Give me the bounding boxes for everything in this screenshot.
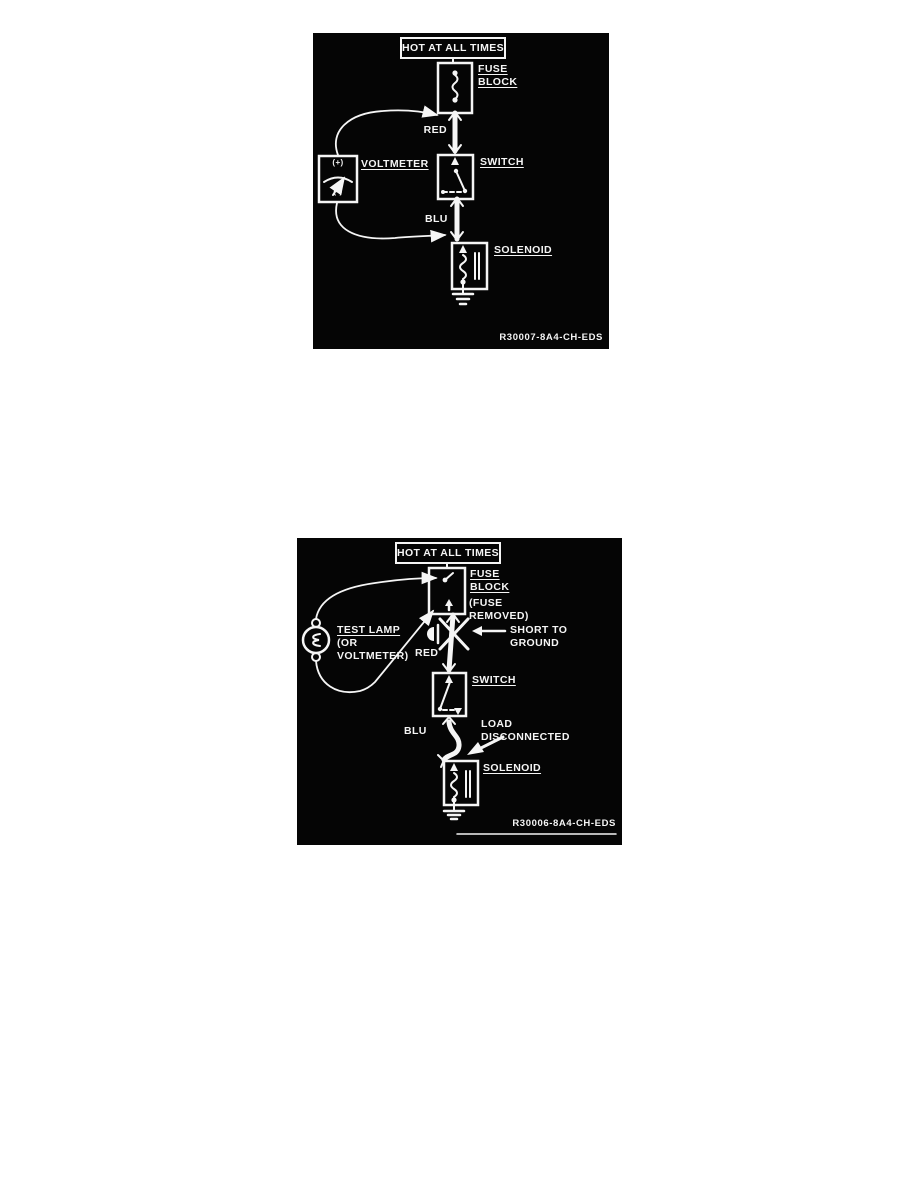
hot-banner-label: HOT AT ALL TIMES <box>401 43 505 54</box>
short-callout-arrow <box>472 626 505 636</box>
fuse-block-label-line2: BLOCK <box>478 77 517 88</box>
red-wire-label: RED <box>413 125 447 136</box>
diagram-short-to-ground-test: HOT AT ALL TIMES FUSE BLOCK (FUSE REMOVE… <box>297 538 622 845</box>
switch-label: SWITCH <box>480 157 524 168</box>
scanned-manual-page: { "colors": { "page_bg": "#ffffff", "pan… <box>0 0 918 1188</box>
solenoid-label: SOLENOID <box>483 763 541 774</box>
solenoid-symbol <box>444 761 478 810</box>
test-lamp-label-line1: TEST LAMP <box>337 625 400 636</box>
diagram-voltmeter-test: HOT AT ALL TIMES FUSE BLOCK RED (+) (-) … <box>313 33 609 349</box>
test-lamp-label-line2: (OR <box>337 638 357 649</box>
red-wire <box>449 112 461 153</box>
voltmeter-minus-label: (-) <box>319 188 357 196</box>
voltmeter-plus-label: (+) <box>319 159 357 167</box>
fuse-block-label-line1: FUSE <box>478 64 508 75</box>
switch-symbol <box>433 673 466 716</box>
hot-banner-label: HOT AT ALL TIMES <box>396 548 500 559</box>
solenoid-label: SOLENOID <box>494 245 552 256</box>
ground-symbol <box>444 811 464 819</box>
switch-symbol <box>438 155 473 199</box>
blu-wire <box>451 198 463 240</box>
blu-wire-disconnected <box>438 717 459 767</box>
fuse-removed-note-line1: (FUSE <box>469 598 503 609</box>
fuse-block-symbol <box>438 63 472 113</box>
short-to-ground-symbol <box>427 619 468 649</box>
red-wire-label: RED <box>415 648 438 659</box>
figure-reference: R30007-8A4-CH-EDS <box>499 333 603 343</box>
test-lamp-label-line3: VOLTMETER) <box>337 651 408 662</box>
fuse-block-label-line1: FUSE <box>470 569 500 580</box>
voltmeter-label: VOLTMETER <box>361 159 429 170</box>
fuse-block-symbol <box>429 568 465 614</box>
ground-symbol <box>453 294 473 304</box>
load-disconnected-label-line1: LOAD <box>481 719 512 730</box>
switch-label: SWITCH <box>472 675 516 686</box>
blu-wire-label: BLU <box>425 214 448 225</box>
fuse-removed-note-line2: REMOVED) <box>469 611 529 622</box>
solenoid-symbol <box>452 243 487 293</box>
short-to-ground-label-line2: GROUND <box>510 638 559 649</box>
fuse-block-label-line2: BLOCK <box>470 582 509 593</box>
figure-reference: R30006-8A4-CH-EDS <box>512 819 616 829</box>
short-to-ground-label-line1: SHORT TO <box>510 625 567 636</box>
lamp-lead-to-fuse-top <box>316 578 436 619</box>
blu-wire-label: BLU <box>404 726 427 737</box>
test-lamp-symbol <box>303 619 329 661</box>
load-disconnected-label-line2: DISCONNECTED <box>481 732 570 743</box>
